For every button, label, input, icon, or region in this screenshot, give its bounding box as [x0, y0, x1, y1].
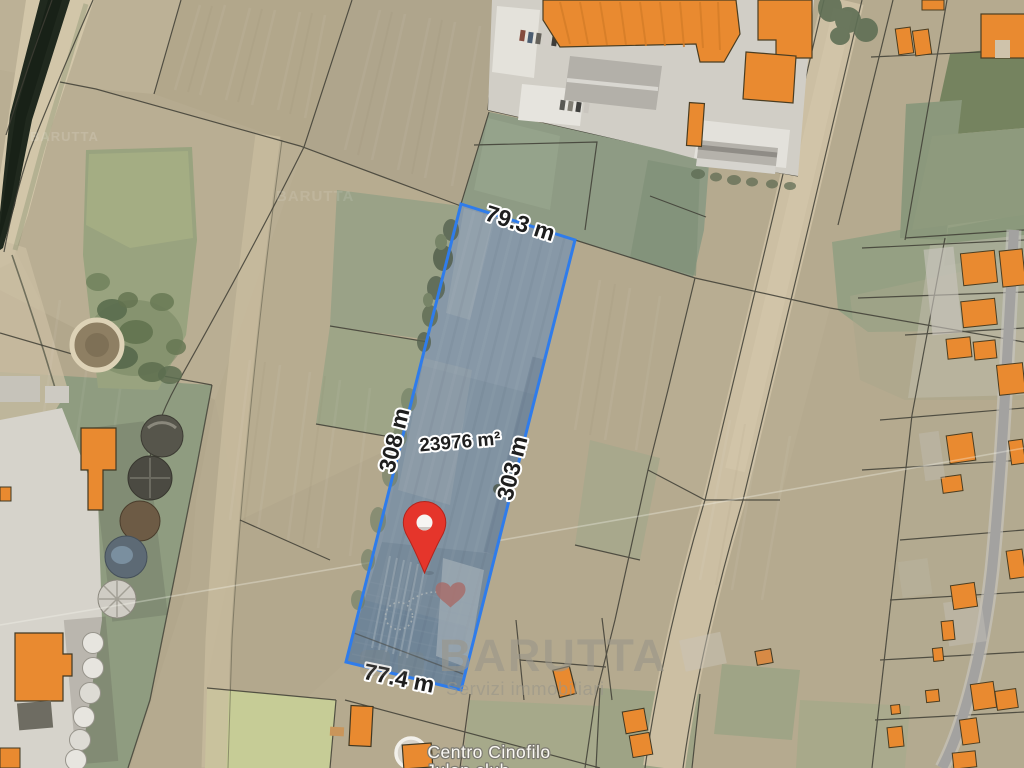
svg-text:Julan club: Julan club: [426, 761, 510, 768]
svg-text:BARUTTA: BARUTTA: [30, 129, 99, 144]
svg-text:Servizi immobiliari: Servizi immobiliari: [446, 678, 605, 699]
svg-text:BARUTTA: BARUTTA: [276, 188, 354, 205]
svg-text:Centro Cinofilo: Centro Cinofilo: [427, 742, 550, 762]
svg-text:BARUTTA: BARUTTA: [439, 630, 667, 681]
